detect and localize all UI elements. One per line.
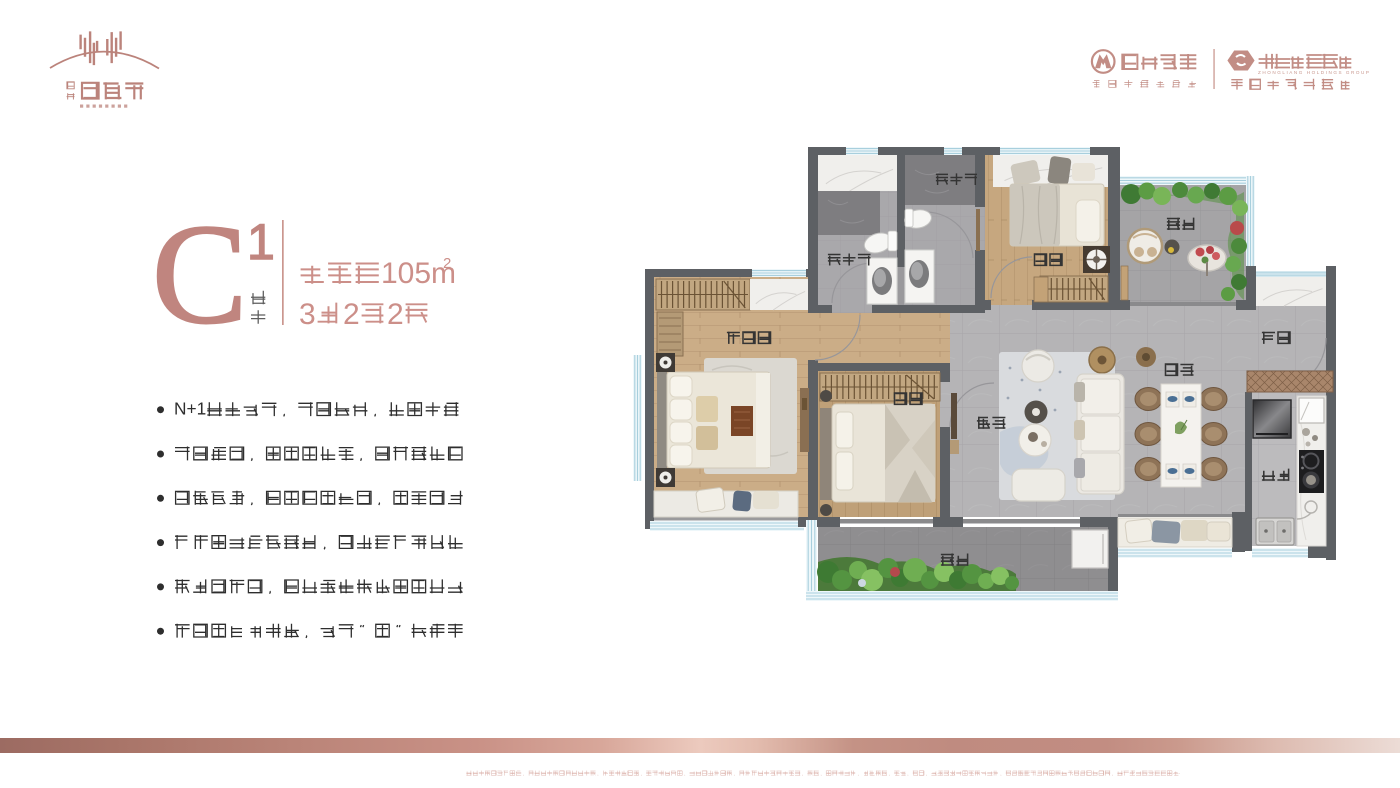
svg-text:3: 3 (299, 298, 316, 331)
svg-text:2: 2 (387, 298, 404, 331)
svg-text:N+1: N+1 (174, 399, 206, 419)
svg-text:ZHONGLIANG HOLDINGS GROUP: ZHONGLIANG HOLDINGS GROUP (1258, 70, 1370, 75)
svg-text:2: 2 (343, 298, 360, 331)
svg-text:C: C (152, 195, 247, 353)
svg-text:2: 2 (443, 255, 451, 272)
svg-text:1: 1 (247, 214, 275, 270)
